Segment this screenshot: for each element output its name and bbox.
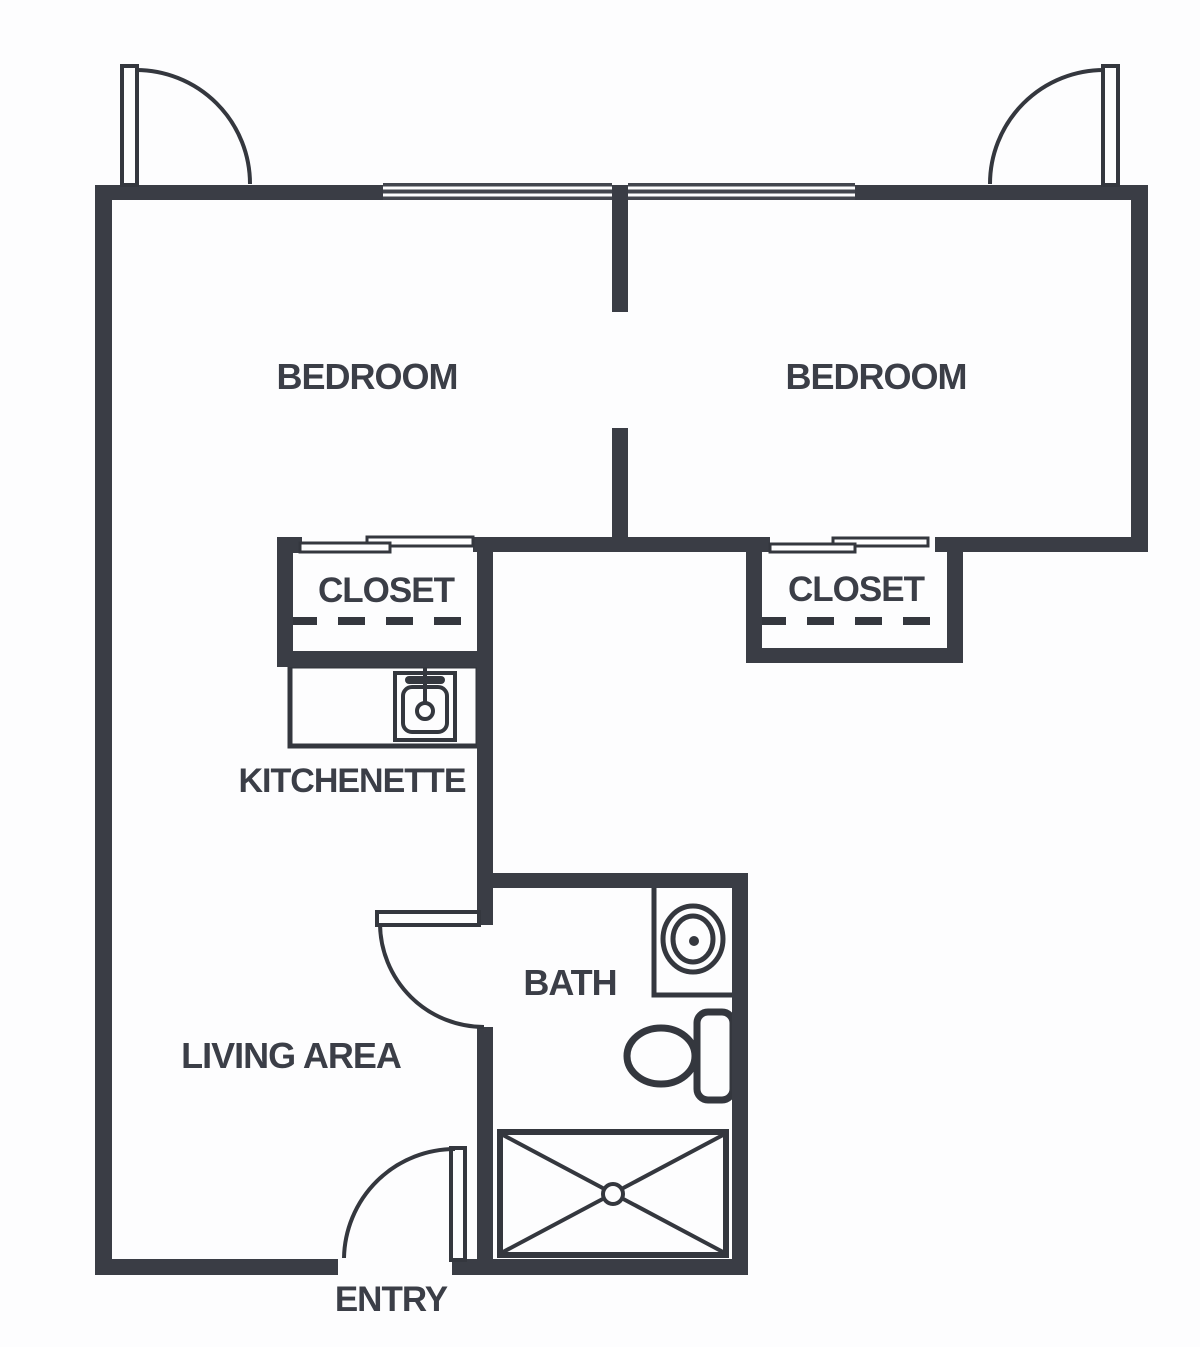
bedroom-left-door-icon <box>122 66 250 185</box>
window-line <box>628 183 855 187</box>
wall-bath-top <box>477 873 748 888</box>
window-line <box>383 190 612 194</box>
walls-layer <box>95 185 1148 1275</box>
closet-left-label: CLOSET <box>318 571 455 610</box>
top-wall-window-right-icon <box>628 183 855 200</box>
shower-drain <box>603 1184 623 1204</box>
floor-plan-drawing: BEDROOM BEDROOM CLOSET CLOSET KITCHENETT… <box>0 0 1200 1347</box>
wall-bottom-right <box>452 1259 748 1275</box>
wall-right-outer <box>1131 185 1148 552</box>
living-area-label: LIVING AREA <box>181 1035 402 1076</box>
wall-closet-left-side <box>277 537 293 667</box>
toilet-bowl <box>627 1028 695 1084</box>
bedroom-right-door-icon <box>990 66 1118 185</box>
wall-bedroom-divider-lower <box>612 428 628 552</box>
window-line <box>383 197 612 201</box>
main-entry-door-icon <box>344 1148 465 1260</box>
wall-corridor-upper <box>477 537 493 925</box>
door-leaf <box>451 1148 465 1260</box>
wall-bedroom-divider-upper <box>612 200 628 312</box>
closet-right-label: CLOSET <box>788 570 925 609</box>
wall-closet-left-bottom <box>277 651 490 667</box>
toilet-tank <box>697 1012 733 1100</box>
bath-door-icon <box>377 912 484 1027</box>
kitchenette-label: KITCHENETTE <box>239 762 466 800</box>
top-wall-window-left-icon <box>383 183 612 200</box>
wall-left-outer <box>95 185 112 1275</box>
window-line <box>383 183 612 187</box>
wall-top-center-junction <box>612 185 628 200</box>
wall-hall-top <box>473 537 770 552</box>
wall-bath-right <box>732 873 748 1275</box>
wall-top-right <box>855 185 1148 200</box>
fixtures-layer <box>290 621 950 1255</box>
bedroom-left-label: BEDROOM <box>277 356 458 397</box>
wall-closet-right-right-side <box>947 552 963 663</box>
closet-left-sliding-doors-icon <box>300 537 473 552</box>
shower-icon <box>500 1132 726 1255</box>
kitchen-sink-icon <box>395 668 455 740</box>
wall-bottom-left <box>95 1259 338 1275</box>
wall-closet-right-bottom <box>746 648 963 663</box>
entry-label: ENTRY <box>335 1280 448 1319</box>
wall-bedroom-right-bottom <box>935 537 1148 552</box>
window-line <box>628 197 855 201</box>
door-swing-arc <box>990 70 1104 184</box>
door-swing-arc <box>344 1149 455 1258</box>
bath-label: BATH <box>523 962 616 1003</box>
wall-closet-right-left-side <box>746 552 762 663</box>
sliding-door-panel <box>770 544 855 552</box>
bedroom-right-label: BEDROOM <box>786 356 967 397</box>
bathroom-sink-icon <box>654 888 736 995</box>
window-line <box>628 190 855 194</box>
door-swing-arc <box>136 70 250 184</box>
door-leaf <box>122 66 137 185</box>
bathroom-sink-drain <box>689 936 699 946</box>
toilet-icon <box>627 1012 733 1100</box>
door-leaf <box>1103 66 1118 185</box>
floor-plan: BEDROOM BEDROOM CLOSET CLOSET KITCHENETT… <box>0 0 1200 1347</box>
closet-right-sliding-doors-icon <box>770 538 928 552</box>
wall-top-left <box>95 185 383 200</box>
wall-corridor-lower <box>477 1027 493 1275</box>
sliding-door-panel <box>300 543 390 552</box>
door-swing-arc <box>380 924 484 1027</box>
door-leaf <box>377 912 479 925</box>
